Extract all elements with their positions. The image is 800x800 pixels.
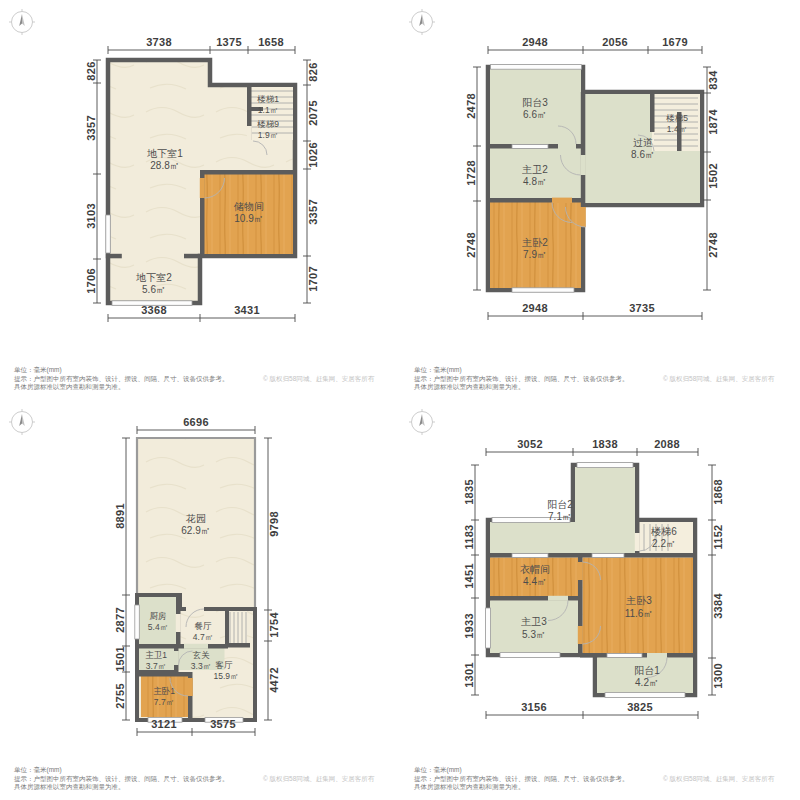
dim-label: 1375 bbox=[216, 36, 242, 48]
hint-note-2: 具体房源标准以室内查勘和测量为准。 bbox=[414, 383, 525, 391]
window bbox=[607, 653, 642, 657]
window bbox=[512, 144, 548, 148]
hint-note-1: 提示：户型图中所有室内装饰、设计、摆设、间隔、尺寸、设备仅供参考。 bbox=[414, 375, 629, 383]
dim-label: 1707 bbox=[307, 266, 319, 292]
dim-label: 1451 bbox=[463, 563, 475, 589]
wall bbox=[225, 609, 229, 647]
dim-label: 1502 bbox=[707, 163, 719, 189]
door-gap bbox=[548, 596, 568, 601]
room-label: 地下室1 bbox=[146, 148, 183, 159]
room-area: 28.8㎡ bbox=[150, 160, 179, 171]
room-area: 7.9㎡ bbox=[523, 249, 547, 260]
dim-label: 3103 bbox=[85, 203, 97, 229]
dim-label: 1183 bbox=[463, 524, 475, 549]
dim-label: 3121 bbox=[151, 718, 177, 730]
dim-label: 8891 bbox=[114, 503, 126, 529]
room-area: 8.6㎡ bbox=[631, 149, 655, 160]
room-area: 5.4㎡ bbox=[148, 622, 168, 632]
room-label: 客厅 bbox=[216, 660, 234, 670]
dim-label: 3738 bbox=[146, 36, 172, 48]
door-gap bbox=[200, 178, 205, 198]
room-area: 5.3㎡ bbox=[522, 629, 546, 640]
plan-level-3: 3052 1838 2088 1835 1183 1451 1933 1301 … bbox=[409, 409, 775, 791]
dim-label: 2056 bbox=[602, 36, 628, 48]
plan-ground-floor: 6696 8891 2877 1501 2755 9798 1754 4472 … bbox=[9, 409, 375, 791]
dim-label: 1501 bbox=[114, 646, 126, 672]
unit-note: 单位：毫米(mm) bbox=[414, 766, 462, 774]
room-area: 1.4㎡ bbox=[667, 124, 687, 134]
dim-label: 826 bbox=[307, 62, 319, 81]
dim-label: 2755 bbox=[114, 683, 126, 709]
unit-note: 单位：毫米(mm) bbox=[14, 366, 62, 374]
dim-label: 9798 bbox=[268, 511, 280, 537]
floorplan-canvas: 3738 1375 1658 826 3357 3103 1706 826 20… bbox=[0, 0, 800, 800]
room-label: 主卫2 bbox=[521, 164, 548, 175]
room-label: 主卧3 bbox=[625, 595, 652, 606]
room-label: 主卫1 bbox=[145, 650, 167, 660]
dim-label: 2088 bbox=[654, 438, 680, 450]
dim-label: 3575 bbox=[210, 718, 236, 730]
copyright-note: © 版权归58同城、赶集网、安居客所有 bbox=[263, 375, 375, 383]
dim-label: 2748 bbox=[465, 232, 477, 258]
door-gap bbox=[188, 678, 193, 696]
door-gap bbox=[580, 207, 585, 227]
compass-icon bbox=[409, 9, 435, 35]
wall bbox=[137, 672, 192, 677]
window bbox=[500, 653, 560, 658]
dim-label: 1835 bbox=[463, 479, 475, 505]
dim-label: 1754 bbox=[268, 612, 280, 638]
unit-note: 单位：毫米(mm) bbox=[14, 766, 62, 774]
room-label: 阳台2 bbox=[547, 499, 573, 510]
window bbox=[106, 215, 111, 253]
dim-label: 1679 bbox=[662, 36, 688, 48]
dim-label: 1152 bbox=[712, 524, 724, 549]
door-gap bbox=[578, 562, 583, 580]
wall bbox=[106, 254, 122, 258]
dim-label: 2877 bbox=[114, 607, 126, 633]
window bbox=[491, 65, 582, 70]
room-label: 厨房 bbox=[150, 611, 167, 621]
hint-note-2: 具体房源标准以室内查勘和测量为准。 bbox=[14, 783, 125, 791]
door-gap bbox=[176, 614, 181, 632]
room-label: 主卧2 bbox=[521, 237, 548, 248]
room-balcony2-floor bbox=[490, 522, 635, 553]
footer-notes: 单位：毫米(mm) 提示：户型图中所有室内装饰、设计、摆设、间隔、尺寸、设备仅供… bbox=[414, 766, 775, 791]
wall bbox=[581, 92, 586, 207]
door-gap bbox=[552, 198, 572, 203]
room-area: 7.7㎡ bbox=[154, 697, 174, 707]
dim-label: 1301 bbox=[463, 662, 475, 688]
copyright-note: © 版权归58同城、赶集网、安居客所有 bbox=[263, 775, 375, 783]
window bbox=[135, 605, 140, 639]
door-gap bbox=[174, 651, 179, 665]
dim-label: 3368 bbox=[141, 304, 167, 316]
room-area: 62.9㎡ bbox=[181, 525, 210, 536]
dim-label: 1300 bbox=[712, 663, 724, 689]
room-label: 过道 bbox=[633, 137, 653, 148]
window bbox=[592, 553, 624, 557]
room-label: 主卫3 bbox=[520, 616, 547, 627]
door-gap bbox=[580, 155, 585, 175]
window bbox=[605, 693, 685, 698]
dim-label: 2948 bbox=[522, 302, 548, 314]
room-area: 4.4㎡ bbox=[523, 576, 547, 587]
room-area: 4.7㎡ bbox=[193, 632, 213, 642]
wall bbox=[184, 254, 202, 258]
plan-level-2: 2948 2056 1679 2478 1728 2748 834 1874 1… bbox=[409, 9, 775, 391]
room-area: 4.2㎡ bbox=[635, 677, 659, 688]
room-label: 地下室2 bbox=[135, 272, 172, 283]
window bbox=[512, 288, 574, 292]
dim-label: 1874 bbox=[707, 109, 719, 135]
dim-label: 3052 bbox=[517, 438, 543, 450]
copyright-note: © 版权归58同城、赶集网、安居客所有 bbox=[663, 375, 775, 383]
room-area: 11.6㎡ bbox=[625, 608, 654, 619]
room-label: 楼梯1 bbox=[257, 94, 279, 104]
room-balcony2-floor bbox=[575, 467, 635, 522]
dim-label: 3357 bbox=[307, 199, 319, 225]
dim-label: 1838 bbox=[592, 438, 618, 450]
room-label: 餐厅 bbox=[195, 621, 213, 631]
dim-label: 1933 bbox=[463, 613, 475, 639]
room-label: 衣帽间 bbox=[520, 564, 550, 575]
hint-note-2: 具体房源标准以室内查勘和测量为准。 bbox=[14, 383, 125, 391]
compass-icon bbox=[9, 409, 35, 435]
wall bbox=[137, 644, 228, 649]
copyright-note: © 版权归58同城、赶集网、安居客所有 bbox=[663, 775, 775, 783]
room-area: 1.1㎡ bbox=[258, 105, 278, 115]
unit-note: 单位：毫米(mm) bbox=[414, 366, 462, 374]
window bbox=[486, 608, 491, 648]
dim-label: 3156 bbox=[521, 701, 547, 713]
room-label: 储物间 bbox=[233, 201, 264, 212]
room-area: 5.6㎡ bbox=[142, 284, 166, 295]
door-gap bbox=[578, 626, 583, 644]
footer-notes: 单位：毫米(mm) 提示：户型图中所有室内装饰、设计、摆设、间隔、尺寸、设备仅供… bbox=[414, 366, 775, 391]
door-gap bbox=[647, 653, 667, 658]
room-area: 3.3㎡ bbox=[191, 661, 211, 671]
room-label: 楼梯6 bbox=[650, 526, 677, 537]
window bbox=[577, 463, 633, 468]
dim-label: 1026 bbox=[307, 142, 319, 168]
wall bbox=[650, 92, 655, 132]
dim-label: 3431 bbox=[234, 304, 260, 316]
room-label: 阳台1 bbox=[634, 665, 660, 676]
room-label: 玄关 bbox=[193, 650, 211, 660]
footer-notes: 单位：毫米(mm) 提示：户型图中所有室内装饰、设计、摆设、间隔、尺寸、设备仅供… bbox=[14, 366, 375, 391]
door-gap bbox=[184, 644, 208, 649]
dim-label: 1706 bbox=[85, 268, 97, 294]
room-area: 4.8㎡ bbox=[523, 176, 547, 187]
door-gap bbox=[635, 533, 640, 551]
room-label: 楼梯5 bbox=[666, 113, 688, 123]
plan-basement: 3738 1375 1658 826 3357 3103 1706 826 20… bbox=[9, 9, 375, 391]
wall bbox=[225, 643, 250, 648]
dim-label: 2075 bbox=[307, 100, 319, 126]
room-label: 楼梯9 bbox=[257, 119, 279, 129]
room-area: 6.6㎡ bbox=[523, 109, 547, 120]
hint-note-1: 提示：户型图中所有室内装饰、设计、摆设、间隔、尺寸、设备仅供参考。 bbox=[14, 375, 229, 383]
dim-label: 3825 bbox=[627, 701, 653, 713]
dim-label: 2478 bbox=[465, 93, 477, 119]
dim-label: 826 bbox=[85, 61, 97, 80]
dim-label: 1868 bbox=[712, 479, 724, 505]
compass-icon bbox=[409, 409, 435, 435]
room-area: 7.1㎡ bbox=[548, 511, 572, 522]
hint-note-1: 提示：户型图中所有室内装饰、设计、摆设、间隔、尺寸、设备仅供参考。 bbox=[414, 775, 629, 783]
compass-icon bbox=[9, 9, 35, 35]
dim-label: 834 bbox=[707, 70, 719, 90]
floorplan-sheet: 3738 1375 1658 826 3357 3103 1706 826 20… bbox=[0, 0, 800, 800]
wall bbox=[200, 170, 295, 175]
dim-label: 2948 bbox=[522, 36, 548, 48]
dim-label: 6696 bbox=[183, 416, 209, 428]
room-label: 花园 bbox=[185, 513, 206, 524]
hint-note-2: 具体房源标准以室内查勘和测量为准。 bbox=[414, 783, 525, 791]
footer-notes: 单位：毫米(mm) 提示：户型图中所有室内装饰、设计、摆设、间隔、尺寸、设备仅供… bbox=[14, 766, 375, 791]
room-area: 3.7㎡ bbox=[146, 661, 166, 671]
room-area: 15.9㎡ bbox=[213, 671, 238, 681]
room-label: 主卧1 bbox=[153, 686, 175, 696]
room-label: 阳台3 bbox=[522, 97, 548, 108]
hint-note-1: 提示：户型图中所有室内装饰、设计、摆设、间隔、尺寸、设备仅供参考。 bbox=[14, 775, 229, 783]
dim-label: 3384 bbox=[712, 593, 724, 619]
window bbox=[512, 553, 548, 557]
dim-label: 4472 bbox=[268, 667, 280, 693]
room-area: 1.9㎡ bbox=[258, 130, 278, 140]
room-area: 2.2㎡ bbox=[652, 538, 676, 549]
dim-label: 2748 bbox=[707, 232, 719, 258]
dim-label: 1728 bbox=[465, 160, 477, 186]
dim-label: 1658 bbox=[258, 36, 284, 48]
door-gap bbox=[247, 126, 252, 140]
door-gap bbox=[558, 144, 576, 149]
dim-label: 3735 bbox=[629, 302, 655, 314]
dim-label: 3357 bbox=[85, 115, 97, 141]
room-area: 10.9㎡ bbox=[234, 213, 263, 224]
